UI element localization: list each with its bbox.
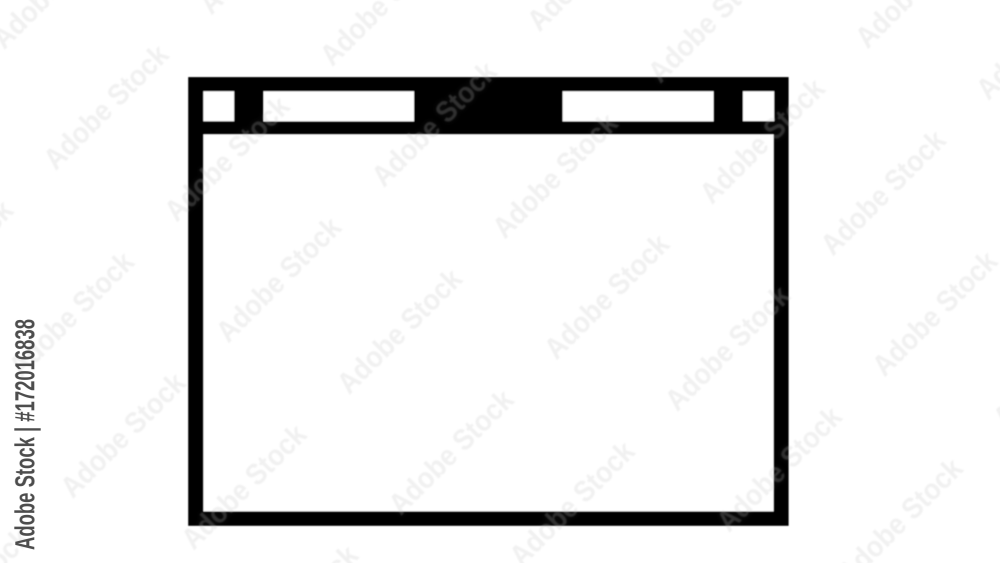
svg-text:Adobe Stock | #172016838: Adobe Stock | #172016838: [9, 319, 40, 550]
